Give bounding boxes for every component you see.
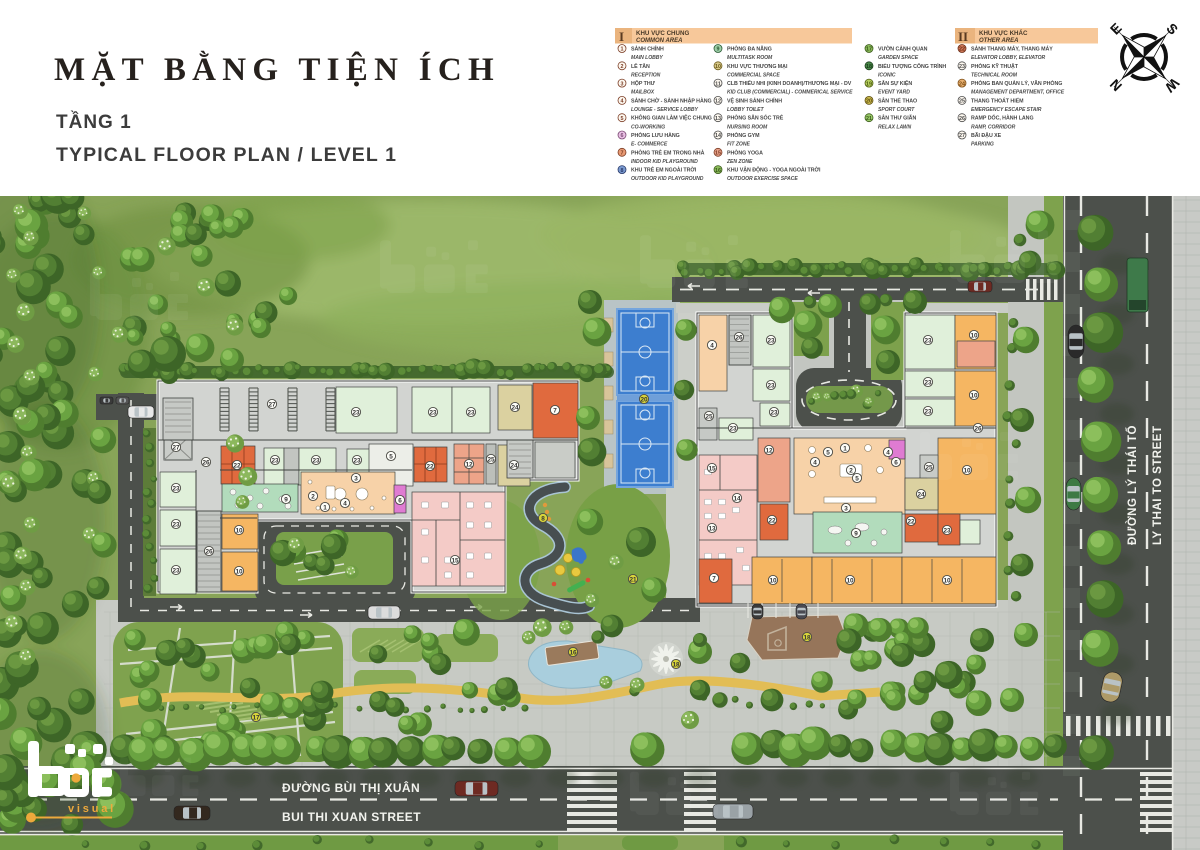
- svg-text:ELEVATOR LOBBY, ELEVATOR: ELEVATOR LOBBY, ELEVATOR: [971, 55, 1046, 61]
- svg-text:24: 24: [917, 491, 925, 498]
- svg-text:19: 19: [866, 81, 872, 87]
- svg-text:SẢNH THANG MÁY, THANG MÁY: SẢNH THANG MÁY, THANG MÁY: [971, 46, 1053, 53]
- svg-text:10: 10: [970, 332, 978, 339]
- svg-text:10: 10: [846, 577, 854, 584]
- svg-text:23: 23: [767, 382, 775, 389]
- svg-text:9: 9: [854, 530, 858, 537]
- svg-text:COMMERCIAL SPACE: COMMERCIAL SPACE: [727, 72, 780, 78]
- svg-text:21: 21: [866, 116, 872, 122]
- svg-text:23: 23: [729, 425, 737, 432]
- svg-text:26: 26: [974, 425, 982, 432]
- svg-text:10: 10: [715, 64, 721, 70]
- svg-text:LỄ TÂN: LỄ TÂN: [631, 63, 650, 70]
- svg-text:INDOOR KID PLAYGROUND: INDOOR KID PLAYGROUND: [631, 159, 698, 165]
- svg-text:5: 5: [855, 475, 859, 482]
- svg-text:18: 18: [866, 64, 872, 70]
- svg-text:BUI THI XUAN STREET: BUI THI XUAN STREET: [282, 810, 421, 824]
- svg-text:ĐƯỜNG BÙI THỊ XUÂN: ĐƯỜNG BÙI THỊ XUÂN: [282, 780, 420, 795]
- svg-text:TECHNICAL ROOM: TECHNICAL ROOM: [971, 72, 1018, 78]
- svg-text:II: II: [958, 29, 968, 44]
- svg-text:OTHER AREA: OTHER AREA: [979, 38, 1018, 44]
- svg-text:25: 25: [925, 464, 933, 471]
- svg-text:EVENT YARD: EVENT YARD: [878, 90, 910, 96]
- svg-text:13: 13: [708, 525, 716, 532]
- svg-text:13: 13: [715, 116, 721, 122]
- svg-text:12: 12: [465, 461, 473, 468]
- svg-text:23: 23: [924, 408, 932, 415]
- svg-text:22: 22: [426, 463, 434, 470]
- svg-text:15: 15: [715, 151, 721, 157]
- svg-text:EMERGENCY ESCAPE STAIR: EMERGENCY ESCAPE STAIR: [971, 107, 1042, 113]
- svg-text:RAMP DỐC, HÀNH LANG: RAMP DỐC, HÀNH LANG: [971, 115, 1034, 122]
- svg-text:7: 7: [712, 575, 716, 582]
- svg-text:1: 1: [843, 445, 847, 452]
- svg-text:LOBBY TOILET: LOBBY TOILET: [727, 107, 765, 113]
- svg-text:NURSING ROOM: NURSING ROOM: [727, 124, 768, 130]
- svg-text:23: 23: [172, 521, 180, 528]
- svg-text:2: 2: [311, 493, 315, 500]
- svg-text:23: 23: [429, 409, 437, 416]
- svg-text:TYPICAL FLOOR PLAN / LEVEL 1: TYPICAL FLOOR PLAN / LEVEL 1: [56, 144, 397, 166]
- svg-text:TẦNG 1: TẦNG 1: [56, 111, 132, 133]
- svg-text:27: 27: [268, 401, 276, 408]
- svg-text:COMMON AREA: COMMON AREA: [636, 38, 682, 44]
- svg-text:14: 14: [715, 133, 721, 139]
- svg-text:25: 25: [705, 413, 713, 420]
- svg-text:20: 20: [640, 396, 648, 403]
- svg-text:22: 22: [907, 518, 915, 525]
- svg-text:8: 8: [621, 168, 624, 174]
- svg-text:27: 27: [959, 133, 965, 139]
- svg-text:MẶT BẰNG TIỆN ÍCH: MẶT BẰNG TIỆN ÍCH: [54, 49, 500, 88]
- svg-text:10: 10: [235, 568, 243, 575]
- svg-text:5: 5: [826, 449, 830, 456]
- svg-text:SẢNH CHÍNH: SẢNH CHÍNH: [631, 45, 664, 53]
- svg-text:10: 10: [963, 467, 971, 474]
- svg-text:E- COMMERCE: E- COMMERCE: [631, 142, 668, 148]
- svg-text:KHU VỰC THƯƠNG MẠI: KHU VỰC THƯƠNG MẠI: [727, 64, 788, 70]
- svg-text:PHÒNG SĂN SÓC TRẺ: PHÒNG SĂN SÓC TRẺ: [727, 114, 784, 122]
- svg-text:ICONIC: ICONIC: [878, 72, 896, 78]
- svg-text:10: 10: [943, 577, 951, 584]
- svg-text:7: 7: [553, 407, 557, 414]
- svg-text:10: 10: [235, 527, 243, 534]
- svg-text:23: 23: [172, 567, 180, 574]
- svg-text:23: 23: [271, 457, 279, 464]
- svg-text:26: 26: [202, 459, 210, 466]
- svg-text:6: 6: [894, 459, 898, 466]
- svg-text:RELAX LAWN: RELAX LAWN: [878, 124, 912, 130]
- svg-text:KHU VẬN ĐỘNG - YOGA NGOÀI TRỜI: KHU VẬN ĐỘNG - YOGA NGOÀI TRỜI: [727, 166, 821, 174]
- svg-text:21: 21: [629, 576, 637, 583]
- svg-text:24: 24: [510, 462, 518, 469]
- svg-text:23: 23: [959, 64, 965, 70]
- svg-text:CO-WORKING: CO-WORKING: [631, 124, 665, 130]
- svg-text:OUTDOOR KID PLAYGROUND: OUTDOOR KID PLAYGROUND: [631, 176, 704, 182]
- svg-text:visual: visual: [68, 803, 116, 815]
- svg-text:3: 3: [621, 81, 624, 87]
- svg-text:20: 20: [866, 99, 872, 105]
- svg-text:KHU VỰC KHÁC: KHU VỰC KHÁC: [979, 30, 1028, 37]
- svg-text:14: 14: [733, 495, 741, 502]
- svg-text:23: 23: [767, 337, 775, 344]
- svg-text:23: 23: [172, 485, 180, 492]
- svg-text:PHÒNG LƯU HÀNG: PHÒNG LƯU HÀNG: [631, 131, 680, 139]
- svg-text:1: 1: [323, 504, 327, 511]
- svg-text:SẢNH CHỜ - SẢNH NHẬP HÀNG: SẢNH CHỜ - SẢNH NHẬP HÀNG: [631, 96, 712, 104]
- svg-text:MULTITASK ROOM: MULTITASK ROOM: [727, 55, 773, 61]
- svg-text:MAIN LOBBY: MAIN LOBBY: [631, 55, 663, 61]
- svg-text:26: 26: [735, 334, 743, 341]
- svg-text:FIT ZONE: FIT ZONE: [727, 142, 750, 148]
- svg-text:RAMP, CORRIDOR: RAMP, CORRIDOR: [971, 124, 1016, 130]
- svg-text:10: 10: [769, 577, 777, 584]
- svg-text:16: 16: [569, 649, 577, 656]
- svg-text:25: 25: [959, 99, 965, 105]
- svg-text:10: 10: [970, 392, 978, 399]
- svg-text:6: 6: [621, 133, 624, 139]
- svg-text:THANG THOÁT HIỂM: THANG THOÁT HIỂM: [971, 97, 1024, 104]
- svg-text:MANAGEMENT DEPARTMENT, OFFICE: MANAGEMENT DEPARTMENT, OFFICE: [971, 90, 1065, 96]
- svg-text:22: 22: [959, 47, 965, 53]
- svg-text:15: 15: [451, 557, 459, 564]
- svg-text:PHÒNG ĐA NĂNG: PHÒNG ĐA NĂNG: [727, 45, 772, 53]
- svg-text:SÂN THƯ GIÃN: SÂN THƯ GIÃN: [878, 115, 916, 122]
- svg-text:CLB THIẾU NHI (KINH DOANH)/THƯ: CLB THIẾU NHI (KINH DOANH)/THƯƠNG MẠI - …: [727, 80, 852, 87]
- svg-text:17: 17: [252, 714, 260, 721]
- svg-text:PHÒNG GYM: PHÒNG GYM: [727, 131, 760, 139]
- svg-text:23: 23: [924, 379, 932, 386]
- svg-text:17: 17: [866, 47, 872, 53]
- svg-text:8: 8: [541, 515, 545, 522]
- svg-text:I: I: [619, 29, 624, 44]
- svg-text:HỘP THƯ: HỘP THƯ: [631, 79, 656, 87]
- svg-text:23: 23: [353, 457, 361, 464]
- svg-text:BIỂU TƯỢNG CÔNG TRÌNH: BIỂU TƯỢNG CÔNG TRÌNH: [878, 62, 946, 70]
- svg-text:23: 23: [943, 527, 951, 534]
- svg-text:PARKING: PARKING: [971, 142, 994, 148]
- svg-text:KID CLUB (COMMERCIAL) - COMMER: KID CLUB (COMMERCIAL) - COMMERICAL SERVI…: [727, 90, 853, 96]
- svg-text:23: 23: [312, 457, 320, 464]
- svg-text:PHÒNG TRẺ EM TRONG NHÀ: PHÒNG TRẺ EM TRONG NHÀ: [631, 148, 705, 156]
- svg-text:26: 26: [205, 548, 213, 555]
- svg-text:BÃI ĐẬU XE: BÃI ĐẬU XE: [971, 132, 1002, 139]
- svg-text:23: 23: [352, 409, 360, 416]
- svg-text:26: 26: [959, 116, 965, 122]
- svg-text:4: 4: [710, 342, 714, 349]
- svg-text:LOUNGE - SERVICE LOBBY: LOUNGE - SERVICE LOBBY: [631, 107, 698, 113]
- svg-text:PHÒNG BAN QUẢN LÝ, VĂN PHÒNG: PHÒNG BAN QUẢN LÝ, VĂN PHÒNG: [971, 79, 1062, 87]
- svg-text:1: 1: [621, 47, 624, 53]
- svg-text:18: 18: [803, 634, 811, 641]
- svg-text:9: 9: [284, 496, 288, 503]
- svg-text:4: 4: [813, 459, 817, 466]
- svg-text:PHÒNG KỸ THUẬT: PHÒNG KỸ THUẬT: [971, 62, 1019, 70]
- svg-text:23: 23: [467, 409, 475, 416]
- svg-text:4: 4: [886, 449, 890, 456]
- svg-text:11: 11: [715, 81, 721, 87]
- svg-text:16: 16: [715, 168, 721, 174]
- svg-text:SÂN SỰ KIỆN: SÂN SỰ KIỆN: [878, 79, 912, 87]
- svg-text:22: 22: [768, 517, 776, 524]
- svg-text:VƯỜN CẢNH QUAN: VƯỜN CẢNH QUAN: [878, 45, 928, 53]
- svg-text:9: 9: [717, 47, 720, 53]
- svg-text:MAILBOX: MAILBOX: [631, 90, 655, 96]
- svg-text:12: 12: [765, 447, 773, 454]
- svg-text:6: 6: [398, 497, 402, 504]
- svg-text:18: 18: [672, 661, 680, 668]
- svg-text:SPORT COURT: SPORT COURT: [878, 107, 915, 113]
- svg-text:2: 2: [849, 467, 853, 474]
- svg-text:24: 24: [959, 81, 965, 87]
- svg-text:ĐƯỜNG LÝ THÁI TỔ: ĐƯỜNG LÝ THÁI TỔ: [1126, 425, 1139, 545]
- svg-text:23: 23: [770, 409, 778, 416]
- svg-text:RECEPTION: RECEPTION: [631, 72, 661, 78]
- svg-text:ZEN ZONE: ZEN ZONE: [726, 159, 753, 165]
- svg-text:OUTDOOR EXERCISE SPACE: OUTDOOR EXERCISE SPACE: [727, 176, 798, 182]
- svg-text:15: 15: [708, 465, 716, 472]
- svg-text:12: 12: [715, 99, 721, 105]
- svg-text:VỆ SINH SẢNH CHÍNH: VỆ SINH SẢNH CHÍNH: [727, 96, 782, 104]
- svg-text:2: 2: [621, 64, 624, 70]
- svg-text:4: 4: [343, 500, 347, 507]
- svg-text:4: 4: [621, 99, 624, 105]
- svg-text:LY THAI TO STREET: LY THAI TO STREET: [1152, 426, 1164, 545]
- svg-text:22: 22: [233, 462, 241, 469]
- svg-text:GARDEN SPACE: GARDEN SPACE: [878, 55, 919, 61]
- svg-text:24: 24: [511, 404, 519, 411]
- svg-text:KHU TRẺ EM NGOÀI TRỜI: KHU TRẺ EM NGOÀI TRỜI: [631, 166, 697, 174]
- svg-text:3: 3: [844, 505, 848, 512]
- svg-text:5: 5: [621, 116, 624, 122]
- svg-text:27: 27: [172, 444, 180, 451]
- svg-text:7: 7: [621, 151, 624, 157]
- svg-text:5: 5: [389, 453, 393, 460]
- svg-text:PHÒNG YOGA: PHÒNG YOGA: [727, 148, 763, 156]
- svg-text:3: 3: [354, 475, 358, 482]
- svg-text:23: 23: [924, 337, 932, 344]
- svg-text:25: 25: [487, 456, 495, 463]
- svg-text:SÂN THỂ THAO: SÂN THỂ THAO: [878, 97, 917, 104]
- svg-text:KHÔNG GIAN LÀM VIỆC CHUNG: KHÔNG GIAN LÀM VIỆC CHUNG: [631, 114, 712, 122]
- svg-text:KHU VỰC CHUNG: KHU VỰC CHUNG: [636, 30, 689, 37]
